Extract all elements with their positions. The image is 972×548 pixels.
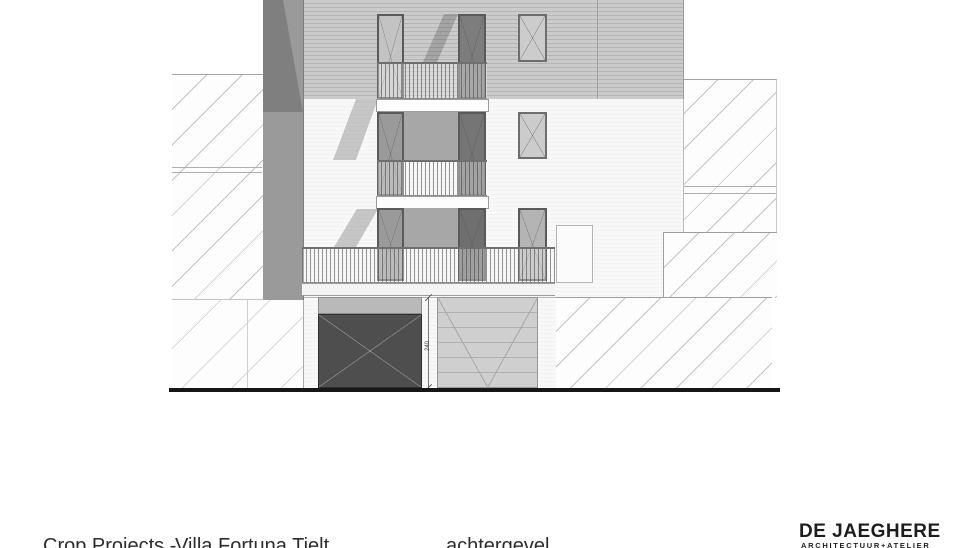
right-neighbor-upper-hatch xyxy=(683,79,777,233)
recess-terrace xyxy=(404,208,458,247)
left-neighbor-upper-hatch xyxy=(172,74,263,300)
cladding-panel-seam xyxy=(597,0,598,99)
right-neighbor-lower-hatch xyxy=(555,297,772,390)
garage-door-left xyxy=(318,314,422,388)
terrace-fascia xyxy=(302,283,555,296)
balcony-railing-mid xyxy=(377,160,487,196)
window-second-floor xyxy=(518,112,547,159)
right-neighbor-mid-hatch xyxy=(663,232,777,298)
rear-door-white xyxy=(556,225,593,283)
balcony-slab-top xyxy=(376,99,489,112)
left-neighbor-roof-line-2 xyxy=(172,172,262,173)
footer-client: Crop Projects - xyxy=(43,535,176,548)
terrace-railing xyxy=(302,247,555,283)
left-neighbor-wall-line xyxy=(247,300,248,390)
footer-view-label: achtergevel xyxy=(446,535,549,548)
left-neighbor-lower-hatch xyxy=(172,299,303,390)
right-neighbor-roof-line-2 xyxy=(683,193,776,194)
window-top-floor xyxy=(518,14,547,62)
ground-line xyxy=(169,388,780,392)
left-neighbor-roof-line-1 xyxy=(172,167,262,168)
elevation-drawing-sheet: 240 Crop Projects - Villa Fortuna Tielt … xyxy=(0,0,972,548)
recess-second-floor xyxy=(404,112,458,160)
dimension-label: 240 xyxy=(425,341,431,351)
balcony-railing-top xyxy=(377,62,487,99)
right-neighbor-roof-line-1 xyxy=(683,186,776,187)
architect-logo-name: DE JAEGHERE xyxy=(799,521,941,543)
footer-project-title: Villa Fortuna Tielt xyxy=(175,535,329,548)
architect-logo-subtitle: ARCHITECTUUR+ATELIER xyxy=(801,541,931,548)
garage-door-right xyxy=(437,297,538,388)
garage-lintel-left xyxy=(318,297,422,314)
